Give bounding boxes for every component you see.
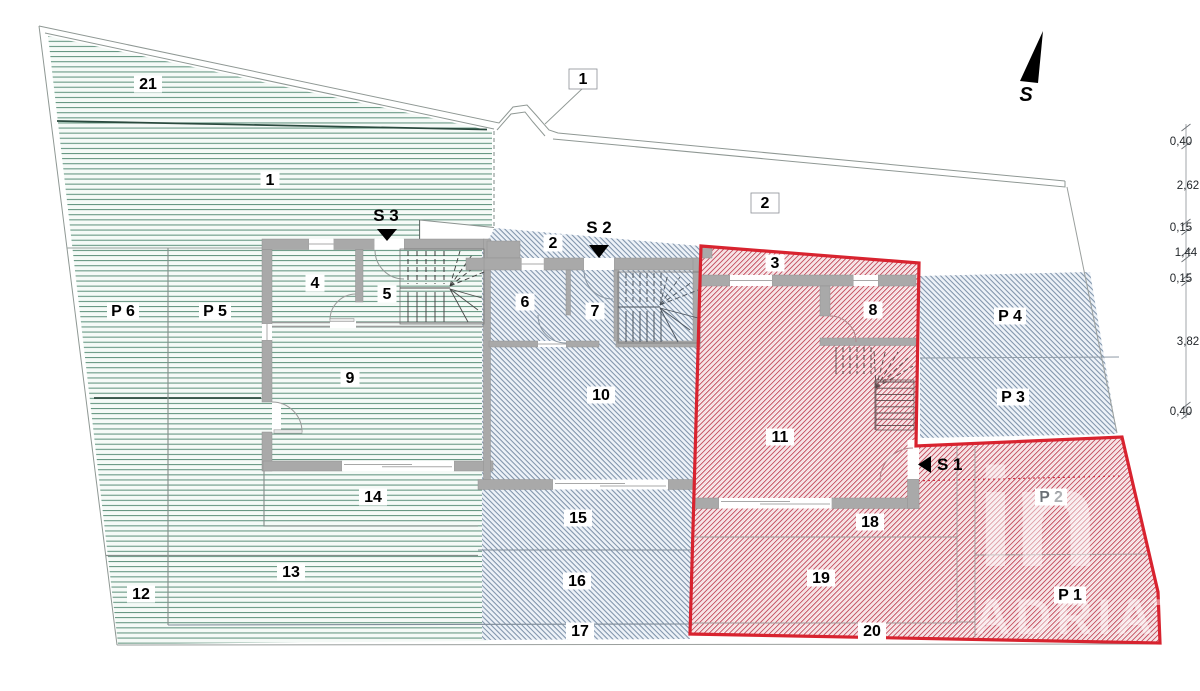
svg-text:2,62: 2,62 <box>1177 180 1199 192</box>
svg-text:1: 1 <box>266 172 275 189</box>
svg-text:P 4: P 4 <box>998 308 1022 325</box>
svg-text:0,40: 0,40 <box>1170 136 1192 148</box>
svg-text:S: S <box>1019 84 1033 106</box>
svg-text:in: in <box>976 439 1096 596</box>
svg-text:11: 11 <box>772 429 789 446</box>
svg-text:5: 5 <box>383 286 392 303</box>
svg-text:10: 10 <box>592 387 610 404</box>
svg-text:18: 18 <box>861 514 879 531</box>
svg-text:1,44: 1,44 <box>1175 247 1198 259</box>
svg-text:15: 15 <box>569 510 587 527</box>
svg-text:2: 2 <box>761 195 770 212</box>
svg-text:6: 6 <box>521 294 530 311</box>
svg-text:14: 14 <box>364 489 382 506</box>
svg-text:8: 8 <box>869 302 878 319</box>
svg-text:3,82: 3,82 <box>1177 336 1199 348</box>
svg-text:S 3: S 3 <box>373 206 399 225</box>
svg-text:0,40: 0,40 <box>1170 406 1192 418</box>
svg-text:19: 19 <box>812 570 830 587</box>
svg-text:9: 9 <box>346 370 355 387</box>
svg-text:16: 16 <box>568 573 586 590</box>
svg-text:21: 21 <box>139 76 157 93</box>
svg-text:P 5: P 5 <box>203 303 227 320</box>
svg-text:ADRIATIC: ADRIATIC <box>974 589 1200 645</box>
svg-text:P 3: P 3 <box>1001 389 1025 406</box>
svg-text:4: 4 <box>311 275 320 292</box>
svg-text:7: 7 <box>591 303 600 320</box>
svg-text:12: 12 <box>132 586 150 603</box>
svg-text:0,15: 0,15 <box>1170 273 1192 285</box>
svg-text:S 2: S 2 <box>586 218 612 237</box>
svg-text:17: 17 <box>571 623 589 640</box>
svg-text:2: 2 <box>549 235 558 252</box>
svg-text:0,15: 0,15 <box>1170 222 1192 234</box>
svg-text:P 6: P 6 <box>111 303 135 320</box>
svg-text:13: 13 <box>282 564 300 581</box>
svg-text:S 1: S 1 <box>937 455 963 474</box>
svg-text:20: 20 <box>863 623 881 640</box>
svg-text:1: 1 <box>579 71 588 88</box>
svg-text:3: 3 <box>771 255 780 272</box>
